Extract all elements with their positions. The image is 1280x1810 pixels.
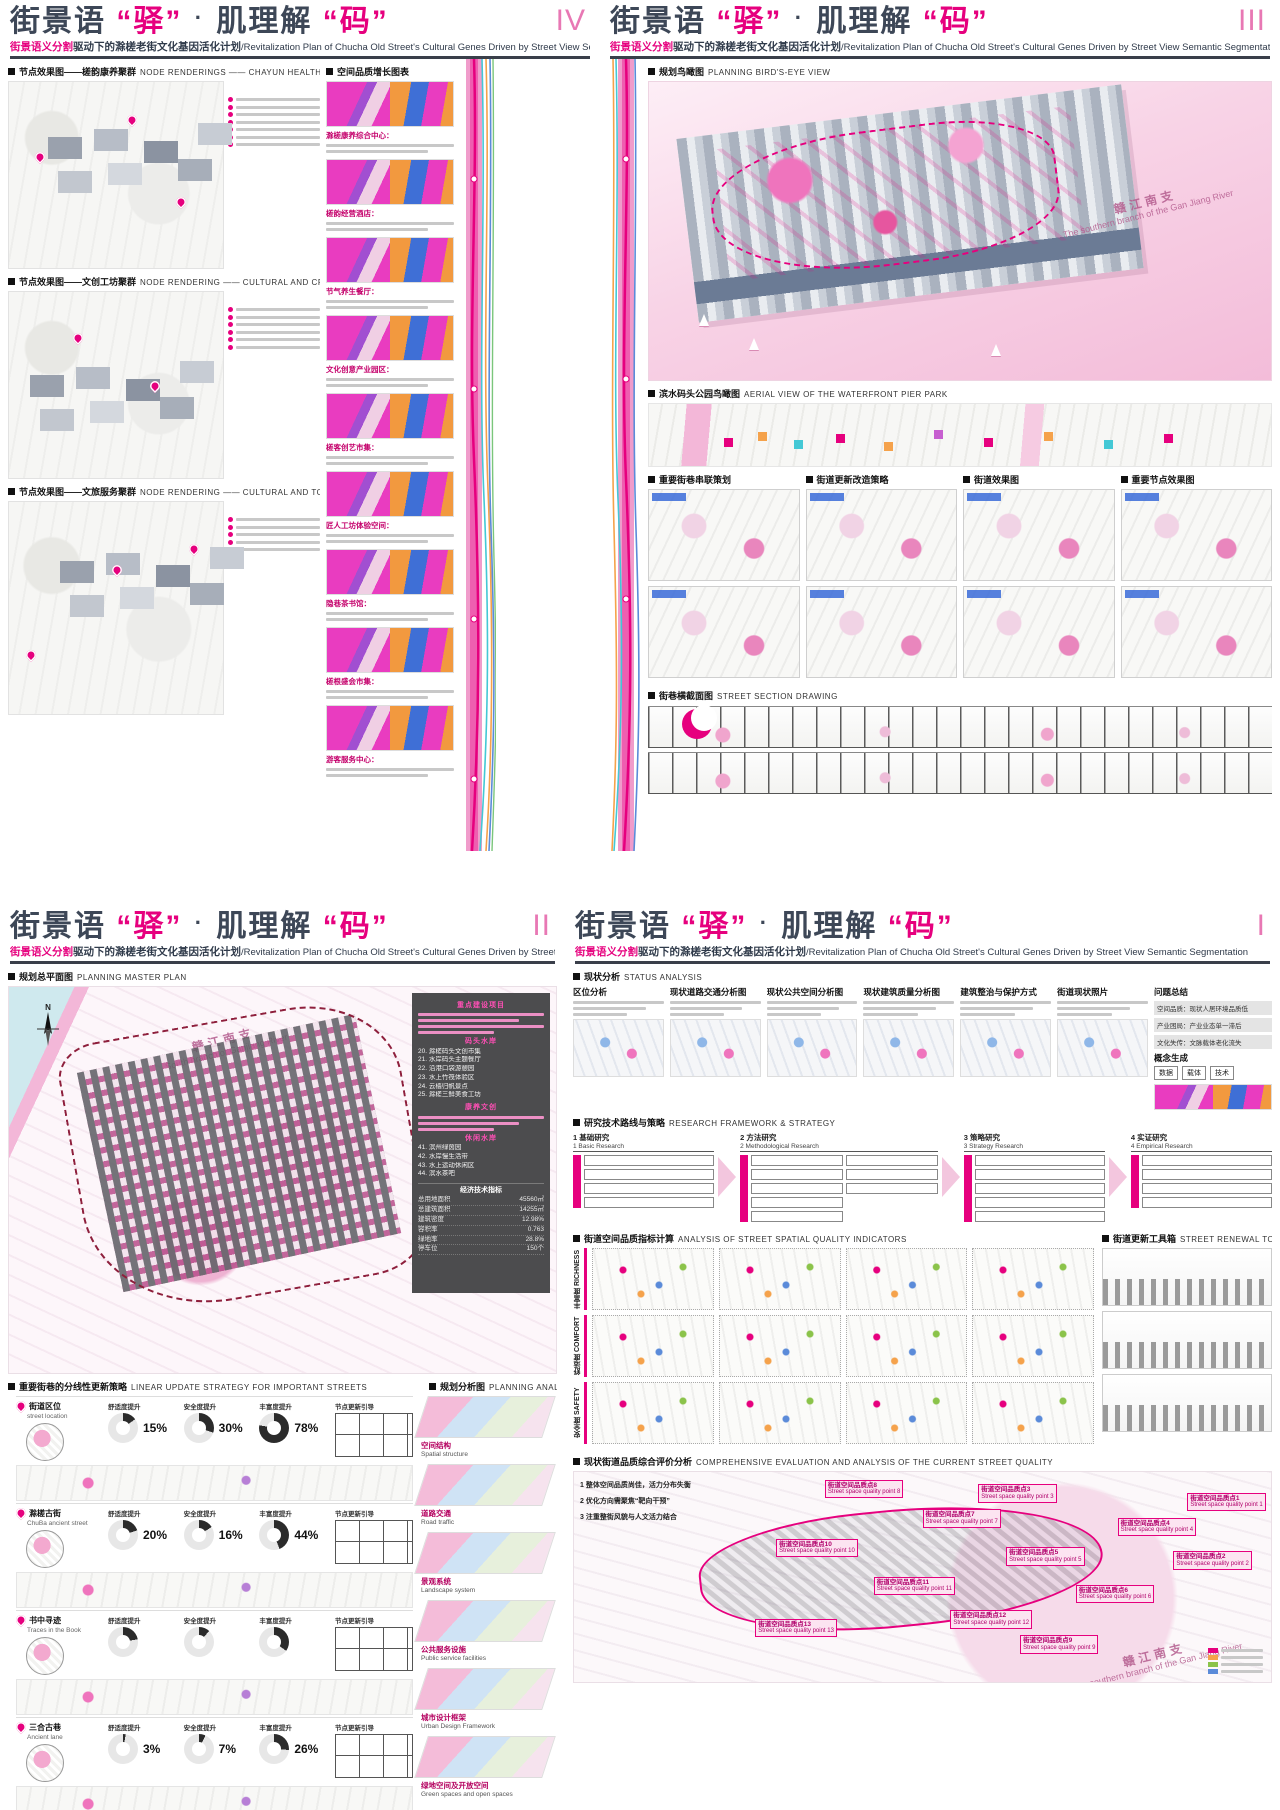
street-location-map [26,1637,64,1675]
segmentation-caption-block: 槎根盛会市集： [326,627,454,699]
caption-skeleton [767,1007,840,1010]
strategy-column: 重要街巷串联策划 [648,469,800,683]
flow-arrow-icon [1109,1157,1127,1197]
metric-value: 28.8% [526,1236,544,1245]
quality-point-cn: 街道空间品质点5 [1009,1549,1081,1556]
node-guide-label: 节点更新引导 [335,1615,413,1625]
legend-item: 22. 沿港口袋游憩园 [418,1065,544,1074]
street-axonometric-sketch [16,1786,413,1810]
sailboat-icon [991,344,1001,356]
street-location-map [26,1423,64,1461]
stage-accent-bar [740,1155,748,1222]
indicator-map-tile [592,1382,714,1444]
quality-point-cn: 街道空间品质点8 [828,1482,900,1489]
caption-skeleton [573,1001,664,1004]
quality-point-en: Street space quality point 7 [926,1519,998,1525]
sailboat-icon [699,314,709,326]
strategy-column: 街道效果图 [963,469,1115,683]
stage-accent-bar [964,1155,972,1222]
layer-title-en: Road traffic [421,1519,549,1526]
map-pin-icon [14,1399,28,1413]
concept-title: 概念生成 [1154,1052,1272,1064]
legend-item: 20. 滁槎码头文创市集 [418,1048,544,1057]
legend-row [1208,1662,1263,1667]
section-title-linear-strategy: 重要街巷的分线性更新策略LINEAR UPDATE STRATEGY FOR I… [8,1380,421,1393]
caption-skeleton [767,1013,821,1016]
caption-body-skeleton [326,690,454,693]
layer-title-cn: 景观系统 [421,1576,549,1587]
caption-skeleton [670,1007,743,1010]
caption-skeleton [573,1013,627,1016]
flow-arrow-icon [718,1157,736,1197]
map-pin-icon [174,195,188,209]
section-title-quality-chart: 空间品质增长图表 [326,65,454,78]
map-pin-icon [71,330,85,344]
layer-diagram [414,1668,556,1710]
street-name-cell: 三合古巷 Ancient lane [16,1722,104,1782]
legend-group-title: 康养文创 [418,1103,544,1112]
donut-cell: 安全度提升 [184,1615,256,1675]
caption-body-skeleton [326,378,454,381]
status-column-title: 街道现状照片 [1057,986,1148,998]
analysis-layer: 城市设计框架 Urban Design Framework [421,1668,549,1730]
donut-value: 7% [219,1742,236,1756]
section-title-indicators: 街道空间品质指标计算ANALYSIS OF STREET SPATIAL QUA… [573,1232,1094,1245]
toolkit-chart-thumbnail [1102,1374,1272,1432]
layer-title-cn: 道路交通 [421,1508,549,1519]
map-pin-icon [33,150,47,164]
illegible-text-line [228,525,320,530]
panel-ii: 街景语 “驿” · 肌理解 “码” II 街景语义分割驱动下的滁槎老街文化基因活… [0,905,565,1810]
caption-body-skeleton [326,300,454,303]
illegible-text-line [228,307,320,312]
street-name-en: street location [27,1413,104,1420]
layer-diagram [414,1600,556,1642]
street-axonometric-sketch [16,1679,413,1715]
status-map-thumbnail [1057,1019,1148,1077]
legend-label-skeleton [1221,1670,1263,1673]
caption-skeleton [1057,1007,1130,1010]
status-column: 现状建筑质量分析图 [863,986,954,1110]
caption-body-skeleton [326,618,428,621]
research-framework-flowchart: 1 基础研究 1 Basic Research 2 方法研究 2 Methodo… [573,1132,1272,1222]
node-guide-grid [335,1627,413,1671]
legend-item-skeleton [418,1122,519,1125]
caption-skeleton [960,1013,1014,1016]
moon-motif [682,709,712,739]
layer-title-cn: 空间结构 [421,1440,549,1451]
metric-value: 45560㎡ [519,1196,544,1205]
semantic-segmentation-image [326,393,454,439]
illegible-text-line [228,135,320,140]
metrics-rows: 总用地面积 45560㎡ 总建筑面积 14255㎡ 建筑密度 [418,1196,544,1255]
strategy-card-image [963,586,1115,678]
metric-row: 容积率 0.763 [418,1226,544,1236]
segmentation-caption-block: 文化创意产业园区： [326,315,454,387]
indicator-row-label: 丰富度 RICHNESS [573,1248,587,1310]
problem-bar: 空间品质：现状人居环境品质低 [1154,1001,1272,1015]
donut-chart [108,1734,138,1764]
status-column: 现状公共空间分析图 [767,986,858,1110]
donut-chart [108,1413,138,1443]
status-column-title: 现状道路交通分析图 [670,986,761,998]
panel-ii-body: 规划总平面图PLANNING MASTER PLAN N 赣江南支 South … [0,970,565,1810]
donut-label: 丰富度提升 [259,1401,331,1411]
donut-label: 安全度提升 [184,1508,256,1518]
street-name-en: Ancient lane [27,1734,104,1741]
quality-point-cn: 街道空间品质点4 [1121,1520,1193,1527]
stage-title-en: 4 Empirical Research [1131,1143,1272,1152]
quality-point-en: Street space quality point 2 [1176,1561,1248,1567]
indicator-map-tile [846,1315,968,1377]
donut-cell: 丰富度提升 [259,1615,331,1675]
caption-skeleton [573,1007,646,1010]
quality-point-en: Street space quality point 13 [758,1628,834,1634]
indicator-map-tile [719,1382,841,1444]
donut-label: 舒适度提升 [108,1615,180,1625]
colorful-pavilion-blocks [724,438,733,447]
layer-title-en: Landscape system [421,1587,549,1594]
street-name-cn: 三合古巷 [29,1722,61,1733]
panel-iv: 街景语 “驿” · 肌理解 “码” IV 街景语义分割驱动下的滁槎老街文化基因活… [0,0,600,905]
metric-value: 12.98% [522,1216,544,1225]
analysis-layer: 绿地空间及开放空间 Green spaces and open spaces [421,1736,549,1798]
section-title-street-section: 街巷横截面图STREET SECTION DRAWING [648,689,1272,702]
semantic-segmentation-image [326,549,454,595]
legend-item: 42. 水岸慢生活带 [418,1153,544,1162]
layer-title-en: Green spaces and open spaces [421,1791,549,1798]
status-column: 街道现状照片 [1057,986,1148,1110]
caption-skeleton [960,1001,1051,1004]
analysis-layer: 道路交通 Road traffic [421,1464,549,1526]
metric-key: 总建筑面积 [418,1206,451,1215]
section-title-node-renderings-3: 节点效果图——文旅服务聚群NODE RENDERING —— CULTURAL … [8,485,320,498]
metric-row: 停车位 150个 [418,1245,544,1255]
node-renderings-column: 节点效果图——槎韵康养聚群NODE RENDERINGS —— CHAYUN H… [8,59,320,851]
map-pin-icon [125,113,139,127]
legend-swatch [1208,1655,1218,1660]
indicator-map-tile [846,1248,968,1310]
status-column: 建筑整治与保护方式 [960,986,1051,1110]
caption-title: 槎客创艺市集： [326,442,454,453]
panel-ii-header: 街景语 “驿” · 肌理解 “码” II 街景语义分割驱动下的滁槎老街文化基因活… [0,905,565,964]
stage-accent-bar [1131,1155,1139,1208]
poster-title: 街景语 “驿” · 肌理解 “码” [10,6,590,38]
strategy-card-image [963,489,1115,581]
quality-point-chip: 街道空间品质点12 Street space quality point 12 [950,1610,1032,1628]
quality-point-en: Street space quality point 6 [1079,1594,1151,1600]
card-label-chip [652,590,686,598]
street-section-drawing-1 [648,706,1272,748]
section-title-evaluation: 现状街道品质综合评价分析COMPREHENSIVE EVALUATION AND… [573,1455,1272,1468]
metric-value: 0.763 [528,1226,544,1235]
research-stage-1: 1 基础研究 1 Basic Research [573,1132,714,1222]
legend-item-skeleton [418,1116,544,1119]
stage-title-en: 1 Basic Research [573,1143,714,1152]
panel-roman-numeral: I [1257,909,1266,943]
strategy-column: 街道更新改造策略 [806,469,958,683]
quality-point-en: Street space quality point 12 [953,1620,1029,1626]
caption-body-skeleton [326,306,428,309]
toolkit-chart-thumbnail [1102,1311,1272,1369]
indicator-map-tile [846,1382,968,1444]
donut-value: 15% [143,1421,167,1435]
semantic-segmentation-image [326,627,454,673]
donut-chart [108,1520,138,1550]
layer-title-en: Public service facilities [421,1655,549,1662]
caption-body-skeleton [326,768,454,771]
flowchart-boxes [1142,1155,1272,1208]
donut-cell: 舒适度提升 15% [108,1401,180,1461]
title-quote: “码” [323,5,389,38]
quality-point-en: Street space quality point 3 [981,1494,1053,1500]
panel-i: 街景语 “驿” · 肌理解 “码” I 街景语义分割驱动下的滁槎老街文化基因活化… [565,905,1280,1810]
indicators-toolkit-row: 丰富度 RICHNESS 舒适度 COMFORT [573,1248,1272,1449]
research-stage-3: 3 策略研究 3 Strategy Research [964,1132,1105,1222]
strategy-card-image [648,586,800,678]
metric-row: 总用地面积 45560㎡ [418,1196,544,1206]
planning-master-plan-map: N 赣江南支 South branch of Ganjiang River 重点… [8,986,557,1374]
layer-diagram [414,1464,556,1506]
flow-arrow-icon [942,1157,960,1197]
status-map-thumbnail [863,1019,954,1077]
donut-value: 78% [294,1421,318,1435]
street-strategy-row: 三合古巷 Ancient lane 舒适度提升 3% 安全度提升 7% [16,1717,413,1810]
evaluation-note: 2 优化方向需聚焦“靶向干预” [580,1496,750,1506]
illegible-text-line [228,517,320,522]
status-map-thumbnail [670,1019,761,1077]
metric-row: 总建筑面积 14255㎡ [418,1206,544,1216]
node-guide-grid [335,1520,413,1564]
panel-iii-main: 规划鸟瞰图PLANNING BIRD'S-EYE VIEW 赣江南支 The s… [648,59,1272,851]
caption-skeleton [1057,1001,1148,1004]
section-title-toolkit: 街道更新工具箱STREET RENEWAL TOOLKIT [1102,1232,1272,1245]
caption-skeleton [1057,1013,1111,1016]
donut-chart [259,1413,289,1443]
quality-point-chip: 街道空间品质点5 Street space quality point 5 [1006,1547,1084,1565]
competition-poster-board: 街景语 “驿” · 肌理解 “码” IV 街景语义分割驱动下的滁槎老街文化基因活… [0,0,1280,1810]
caption-skeleton [863,1007,936,1010]
stage-title-cn: 4 实证研究 [1131,1132,1272,1143]
segmentation-caption-list: 滁槎康养综合中心： 槎韵经营酒店： [326,81,454,777]
semantic-segmentation-image [326,705,454,751]
node-rendering-image [8,501,224,715]
donut-cell: 舒适度提升 [108,1615,180,1675]
stage-title-en: 3 Strategy Research [964,1143,1105,1152]
section-title-status: 现状分析STATUS ANALYSIS [573,970,1272,983]
stage-accent-bar [573,1155,581,1208]
strategy-card-image [1121,489,1273,581]
quality-point-en: Street space quality point 5 [1009,1557,1081,1563]
caption-title: 槎韵经营酒店： [326,208,454,219]
donut-cell: 安全度提升 30% [184,1401,256,1461]
evaluation-note: 3 注重整街风貌与人文活力结合 [580,1512,750,1522]
illegible-text-line [228,540,320,545]
strategy-card-image [1121,586,1273,678]
legend-box: 重点建设项目 码头水岸 20. 滁槎码头文创市集21. 水岸码头主题餐厅22. … [412,993,550,1293]
problem-summary-title: 问题总结 [1154,986,1272,998]
street-strategy-row: 滁槎古街 ChuBa ancient street 舒适度提升 20% 安全度提… [16,1503,413,1610]
status-map-thumbnail [960,1019,1051,1077]
card-label-chip [967,493,1001,501]
semantic-segmentation-image [326,237,454,283]
concept-keywords: 数据载体技术 [1154,1066,1272,1080]
illegible-text-line [228,330,320,335]
research-stage-2: 2 方法研究 2 Methodological Research [740,1132,938,1222]
street-name-en: Traces in the Book [27,1627,104,1634]
indicator-map-tile [972,1315,1094,1377]
legend-item: 21. 水岸码头主题餐厅 [418,1056,544,1065]
concept-keyword: 技术 [1210,1066,1234,1080]
donut-cell: 舒适度提升 3% [108,1722,180,1782]
donut-label: 丰富度提升 [259,1508,331,1518]
flowchart-boxes [846,1155,938,1222]
street-name-cell: 书中寻迹 Traces in the Book [16,1615,104,1675]
donut-label: 安全度提升 [184,1401,256,1411]
strategy-card-image [648,489,800,581]
layer-diagram [414,1396,556,1438]
caption-skeleton [670,1001,761,1004]
caption-body-skeleton [326,774,428,777]
street-name-cn: 书中寻迹 [29,1615,61,1626]
layer-diagram [414,1736,556,1778]
node-guide-grid [335,1413,413,1457]
status-column-title: 建筑整治与保护方式 [960,986,1051,998]
quality-point-chip: 街道空间品质点13 Street space quality point 13 [755,1619,837,1637]
street-renewal-toolkit-column [1102,1248,1272,1449]
map-pin-icon [110,563,124,577]
donut-label: 舒适度提升 [108,1508,180,1518]
caption-skeleton [863,1001,954,1004]
section-title-pier-aerial: 滨水码头公园鸟瞰图AERIAL VIEW OF THE WATERFRONT P… [648,387,1272,400]
donut-value: 16% [219,1528,243,1542]
analysis-layer: 景观系统 Landscape system [421,1532,549,1594]
donut-label: 舒适度提升 [108,1722,180,1732]
donut-cell: 安全度提升 7% [184,1722,256,1782]
caption-title: 槎根盛会市集： [326,676,454,687]
donut-cell: 丰富度提升 78% [259,1401,331,1461]
street-strategy-row: 书中寻迹 Traces in the Book 舒适度提升 安全度提升 [16,1610,413,1717]
map-pin-icon [24,648,38,662]
panel-i-header: 街景语 “驿” · 肌理解 “码” I 街景语义分割驱动下的滁槎老街文化基因活化… [565,905,1280,964]
concept-keyword: 数据 [1154,1066,1178,1080]
donut-label: 舒适度提升 [108,1401,180,1411]
status-columns: 区位分析 现状道路交通分析图 [573,986,1148,1110]
analysis-layer: 公共服务设施 Public service facilities [421,1600,549,1662]
node-guide-label: 节点更新引导 [335,1508,413,1518]
legend-items: 41. 滨州绿茵园42. 水岸慢生活带43. 水上运动休闲区44. 滨水茶吧 [418,1144,544,1179]
legend-item-skeleton [418,1019,519,1022]
legend-item: 44. 滨水茶吧 [418,1170,544,1179]
street-strategy-rows: 街道区位 street location 舒适度提升 15% 安全度提升 30% [16,1396,413,1810]
quality-point-cn: 街道空间品质点13 [758,1621,834,1628]
caption-title: 节气养生餐厅： [326,286,454,297]
status-column-title: 现状公共空间分析图 [767,986,858,998]
legend-item-skeleton [418,1031,494,1034]
section-title-node-renderings-1: 节点效果图——槎韵康养聚群NODE RENDERINGS —— CHAYUN H… [8,65,320,78]
status-column-title: 区位分析 [573,986,664,998]
legend-label-skeleton [1221,1656,1263,1659]
street-location-map [26,1530,64,1568]
street-name-en: ChuBa ancient street [27,1520,104,1527]
card-label-chip [652,493,686,501]
legend-row [1208,1669,1263,1674]
evaluation-notes: 1 整体空间品质尚佳，活力分布失衡2 优化方向需聚焦“靶向干预”3 注重整街风貌… [580,1480,750,1528]
illegible-text-line [228,337,320,342]
illegible-text-line [228,315,320,320]
node-guide-label: 节点更新引导 [335,1722,413,1732]
caption-skeleton [863,1013,917,1016]
caption-body-skeleton [326,696,428,699]
caption-title: 隐巷茶书馆： [326,598,454,609]
donut-value: 26% [294,1742,318,1756]
legend-row [1208,1648,1263,1653]
layer-title-cn: 公共服务设施 [421,1644,549,1655]
node-rendering-image [8,81,224,269]
quality-point-cn: 街道空间品质点7 [926,1511,998,1518]
map-pin-icon [187,542,201,556]
semantic-segmentation-image [326,315,454,361]
legend-item-skeleton [418,1025,544,1028]
evaluation-note: 1 整体空间品质尚佳，活力分布失衡 [580,1480,750,1490]
status-analysis-row: 区位分析 现状道路交通分析图 [573,986,1272,1110]
panel-iv-header: 街景语 “驿” · 肌理解 “码” IV 街景语义分割驱动下的滁槎老街文化基因活… [0,0,600,59]
problem-bars: 空间品质：现状人居环境品质低产业困局：产业业态单一滞后文化失传：文脉载体老化流失 [1154,1001,1272,1049]
section-title-node-renderings-2: 节点效果图——文创工坊聚群NODE RENDERING —— CULTURAL … [8,275,320,288]
segmentation-caption-block: 匠人工坊体验空间： [326,471,454,543]
quality-growth-column: 空间品质增长图表 滁槎康养综合中心： 槎韵经营酒店： [326,59,454,851]
metric-key: 建筑密度 [418,1216,444,1225]
stage-title-cn: 2 方法研究 [740,1132,938,1143]
flowchart-boxes [584,1155,714,1208]
map-pin-icon [14,1506,28,1520]
node-rendering-section-1: 节点效果图——槎韵康养聚群NODE RENDERINGS —— CHAYUN H… [8,65,320,269]
street-name-cell: 滁槎古街 ChuBa ancient street [16,1508,104,1568]
poster-subtitle: 街景语义分割驱动下的滁槎老街文化基因活化计划/Revitalization Pl… [575,946,1270,964]
poster-subtitle: 街景语义分割驱动下的滁槎老街文化基因活化计划/Revitalization Pl… [10,41,590,59]
illegible-text-line [228,345,320,350]
caption-body-skeleton [326,534,454,537]
donut-value: 3% [143,1742,160,1756]
legend-item-skeleton [418,1128,494,1131]
legend-item: 23. 水上竹筏体验区 [418,1074,544,1083]
node-rendering-section-2: 节点效果图——文创工坊聚群NODE RENDERING —— CULTURAL … [8,275,320,479]
site-boundary-dashed [53,990,435,1323]
caption-title: 滁槎康养综合中心： [326,130,454,141]
panel-iii-body: 规划鸟瞰图PLANNING BIRD'S-EYE VIEW 赣江南支 The s… [600,59,1280,851]
legend-label-skeleton [1221,1649,1263,1652]
card-label-chip [1125,493,1159,501]
layer-diagram [414,1532,556,1574]
planning-birdseye-image: 赣江南支 The southern branch of the Gan Jian… [648,81,1272,381]
quality-point-chip: 街道空间品质点8 Street space quality point 8 [825,1480,903,1498]
strategy-column-title: 街道效果图 [963,473,1115,486]
analysis-layer: 空间结构 Spatial structure [421,1396,549,1458]
caption-body-skeleton [326,612,454,615]
donut-chart [184,1520,214,1550]
indicator-row: 安全度 SAFETY [573,1382,1094,1444]
caption-body-skeleton [326,462,428,465]
quality-point-cn: 街道空间品质点2 [1176,1553,1248,1560]
section-title-analysis-diagrams: 规划分析图PLANNING ANALYSIS DIAGRAMS [429,1380,557,1393]
node-rendering-section-3: 节点效果图——文旅服务聚群NODE RENDERING —— CULTURAL … [8,485,320,715]
legend-item: 43. 水上运动休闲区 [418,1162,544,1171]
status-column-title: 现状建筑质量分析图 [863,986,954,998]
illegible-text-line [228,532,320,537]
illegible-text-line [228,97,320,102]
segmentation-caption-block: 滁槎康养综合中心： [326,81,454,153]
node-bullet-list [228,81,320,269]
